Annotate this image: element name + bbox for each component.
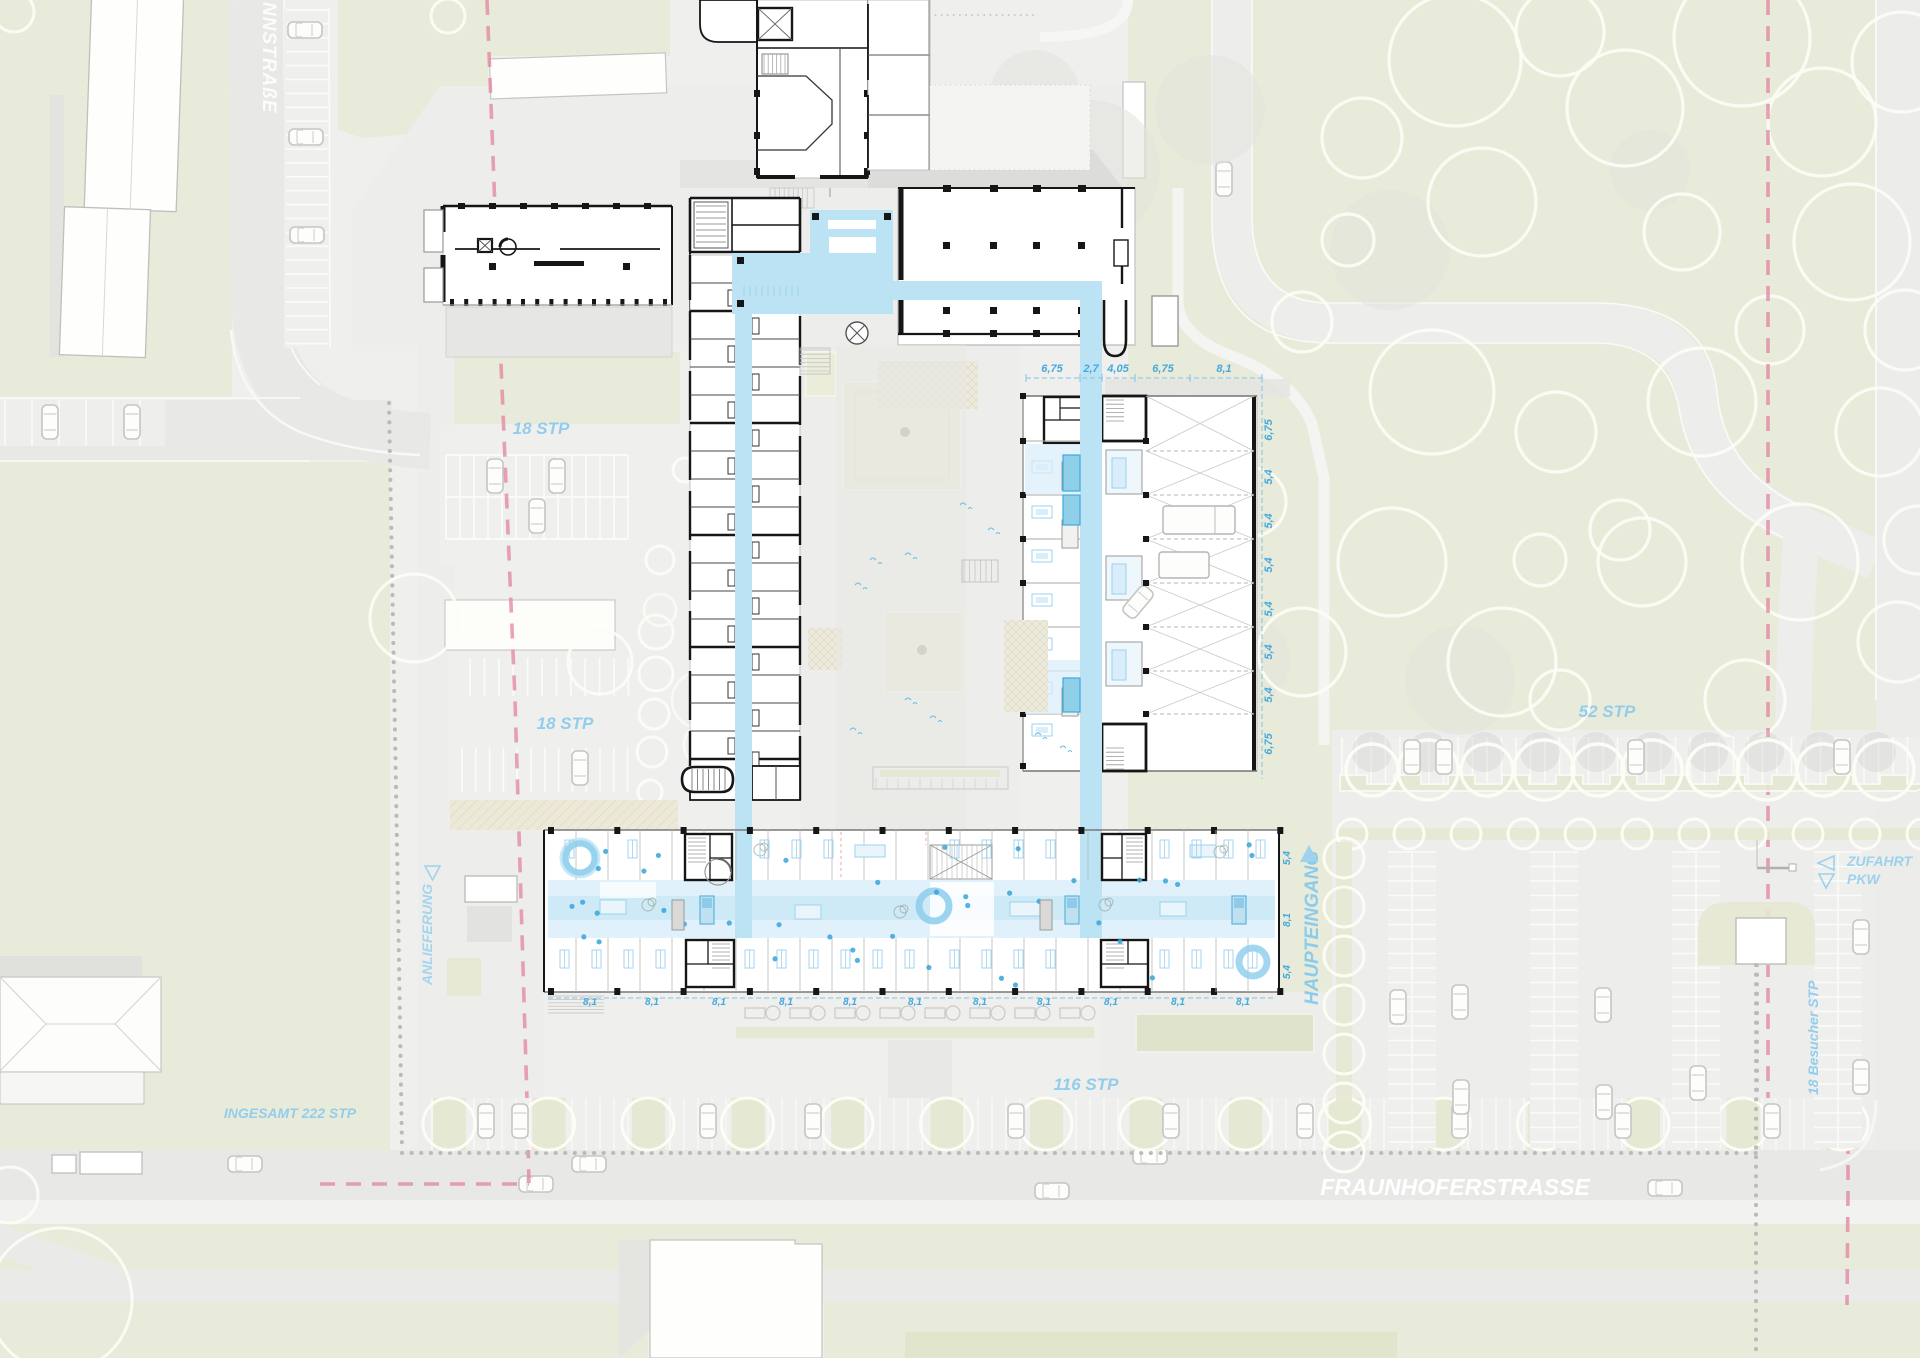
svg-text:6,75: 6,75 (1152, 363, 1174, 375)
svg-text:5,4: 5,4 (1263, 469, 1275, 484)
svg-text:5,4: 5,4 (1263, 513, 1275, 528)
svg-text:8,1: 8,1 (645, 997, 659, 1008)
svg-text:18 STP: 18 STP (513, 419, 570, 438)
svg-text:8,1: 8,1 (908, 997, 922, 1008)
svg-text:6,75: 6,75 (1041, 363, 1063, 375)
svg-text:5,4: 5,4 (1282, 851, 1293, 865)
svg-text:8,1: 8,1 (843, 997, 857, 1008)
svg-text:8,1: 8,1 (1037, 997, 1051, 1008)
svg-text:8,1: 8,1 (1236, 997, 1250, 1008)
svg-text:PKW: PKW (1847, 871, 1881, 887)
svg-text:5,4: 5,4 (1263, 687, 1275, 702)
svg-text:NNSTRAßE: NNSTRAßE (258, 2, 279, 114)
svg-text:8,1: 8,1 (583, 997, 597, 1008)
svg-text:5,4: 5,4 (1263, 557, 1275, 572)
svg-text:8,1: 8,1 (779, 997, 793, 1008)
svg-text:HAUPTEINGANG: HAUPTEINGANG (1302, 851, 1323, 1005)
svg-text:8,1: 8,1 (712, 997, 726, 1008)
svg-text:ANLIEFERUNG: ANLIEFERUNG (419, 884, 435, 986)
svg-text:2,7: 2,7 (1082, 363, 1099, 375)
svg-text:4,05: 4,05 (1106, 363, 1129, 375)
svg-text:6,75: 6,75 (1263, 732, 1275, 754)
svg-text:8,1: 8,1 (973, 997, 987, 1008)
svg-text:18 Besucher STP: 18 Besucher STP (1805, 980, 1821, 1095)
svg-text:18 STP: 18 STP (537, 714, 594, 733)
svg-text:116 STP: 116 STP (1054, 1075, 1120, 1094)
svg-text:INGESAMT 222 STP: INGESAMT 222 STP (224, 1105, 357, 1121)
svg-text:5,4: 5,4 (1263, 644, 1275, 659)
svg-text:8,1: 8,1 (1282, 913, 1293, 927)
svg-text:ZUFAHRT: ZUFAHRT (1846, 853, 1914, 869)
svg-text:6,75: 6,75 (1263, 418, 1275, 440)
svg-text:5,4: 5,4 (1282, 965, 1293, 979)
svg-text:8,1: 8,1 (1216, 363, 1231, 375)
svg-text:8,1: 8,1 (1104, 997, 1118, 1008)
svg-text:8,1: 8,1 (1171, 997, 1185, 1008)
svg-text:52 STP: 52 STP (1579, 702, 1636, 721)
svg-text:FRAUNHOFERSTRASSE: FRAUNHOFERSTRASSE (1320, 1174, 1590, 1200)
svg-text:5,4: 5,4 (1263, 601, 1275, 616)
